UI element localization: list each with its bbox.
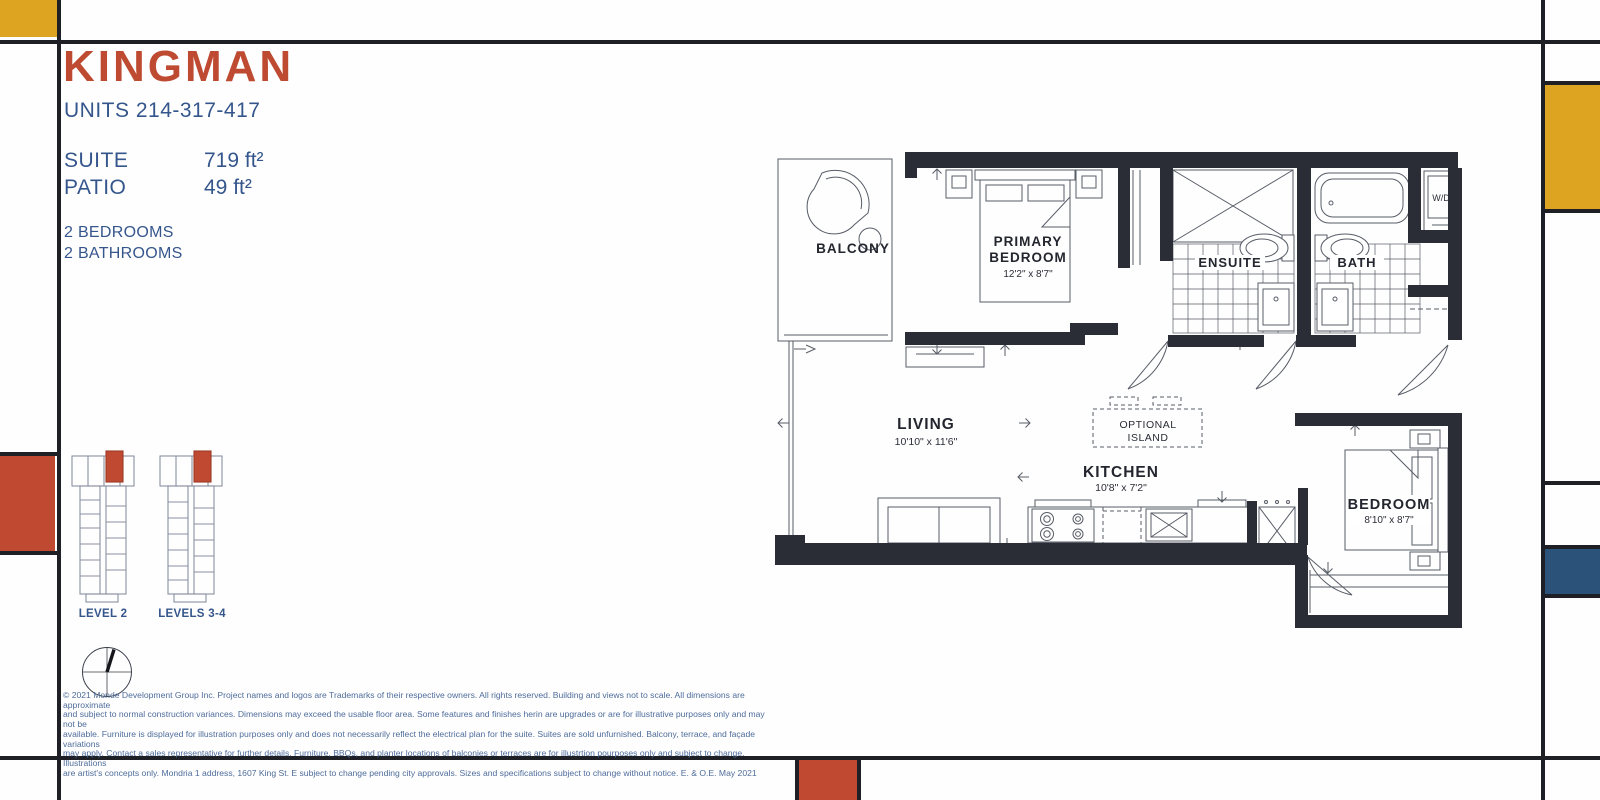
optional-island-label-2: ISLAND (1128, 432, 1169, 444)
label-halos (1195, 255, 1430, 525)
bathrooms-count: 2 BATHROOMS (64, 245, 183, 263)
right-mid-bar (1541, 481, 1600, 485)
unit-numbers: UNITS 214-317-417 (64, 99, 260, 123)
primary-bedroom-label-2: BEDROOM (989, 250, 1067, 265)
disclaimer-line: and subject to normal construction varia… (63, 710, 779, 729)
ensuite-door-swing (1128, 341, 1168, 389)
primary-bedroom-dims: 12'2" x 8'7" (1003, 269, 1053, 280)
ensuite-sink (1258, 283, 1294, 331)
blue-right-bottom-bar (1541, 594, 1600, 598)
patio-deck-lines (1310, 570, 1456, 613)
bath-door-swing (1256, 341, 1296, 389)
patio-label: PATIO (64, 176, 204, 200)
disclaimer-line: may apply. Contact a sales representativ… (63, 749, 779, 768)
kitchen-sink (1146, 509, 1192, 541)
disclaimer-line: available. Furniture is displayed for il… (63, 730, 779, 749)
bath-label: BATH (1337, 255, 1376, 270)
sofa (878, 498, 1000, 548)
patio-value: 49 ft² (204, 176, 252, 199)
kitchen-dims: 10'8" x 7'2" (1095, 482, 1147, 494)
kitchen-counter (1028, 500, 1248, 543)
bedrooms-count: 2 BEDROOMS (64, 224, 174, 242)
keyplan-levels34-building (160, 451, 222, 602)
red-bottom-right-bar (857, 760, 861, 800)
primary-nightstand-right (1076, 170, 1102, 198)
dishwasher (1103, 507, 1141, 543)
primary-bedroom-label-1: PRIMARY (994, 234, 1063, 249)
disclaimer-line: are artist's concepts only. Mondria 1 ad… (63, 769, 779, 779)
mondrian-red-bottom (799, 760, 857, 800)
mondrian-yellow-topleft (0, 0, 57, 37)
optional-island-label-1: OPTIONAL (1119, 419, 1176, 431)
bath-sink (1317, 283, 1353, 331)
disclaimer-text: © 2021 Monde Development Group Inc. Proj… (63, 691, 779, 778)
disclaimer-line: © 2021 Monde Development Group Inc. Proj… (63, 691, 779, 710)
red-left-bottom-bar (0, 551, 57, 555)
yellow-right-bottom-bar (1541, 209, 1600, 213)
stove (1032, 509, 1094, 542)
level2-label: LEVEL 2 (70, 608, 136, 620)
unit-floorplan: BALCONY PRIMARY BEDROOM 12'2" x 8'7" ENS… (770, 145, 1470, 635)
suite-value: 719 ft² (204, 149, 264, 172)
primary-nightstand-left (946, 170, 972, 198)
keyplan-buildings (70, 448, 230, 608)
levels34-label: LEVELS 3-4 (152, 608, 232, 620)
living-label: LIVING (897, 416, 955, 433)
mondrian-yellow-right (1545, 85, 1600, 209)
living-dims: 10'10" x 11'6" (895, 436, 958, 448)
highlight-unit-levels34 (194, 451, 211, 482)
patio-spec-row: PATIO49 ft² (64, 176, 324, 200)
bedroom-nightstand-top (1410, 430, 1440, 448)
suite-spec-row: SUITE719 ft² (64, 149, 324, 173)
keyplan-level2-building (72, 451, 134, 602)
highlight-unit-level2 (106, 451, 123, 482)
mondrian-red-left (0, 456, 55, 551)
bedroom-nightstand-bottom (1410, 552, 1440, 570)
balcony-lounge-chair (807, 170, 869, 234)
frame-vline-left (57, 0, 61, 800)
bedroom-label: BEDROOM (1348, 497, 1431, 513)
balcony-label: BALCONY (816, 241, 890, 256)
kitchen-label: KITCHEN (1083, 464, 1159, 481)
mondrian-blue-right (1545, 549, 1600, 594)
balcony-door-arrow (794, 345, 815, 353)
washer-dryer-label: W/D (1432, 193, 1450, 203)
tv-console (906, 347, 984, 367)
page-title: KINGMAN (63, 42, 294, 92)
ensuite-label: ENSUITE (1198, 255, 1261, 270)
floorplan-sheet: KINGMAN UNITS 214-317-417 SUITE719 ft² P… (0, 0, 1600, 800)
bedroom-dims: 8'10" x 8'7" (1364, 515, 1414, 526)
suite-label: SUITE (64, 149, 204, 173)
ensuite-shower (1173, 170, 1293, 242)
entry-door-swing (1398, 345, 1448, 395)
bathtub (1315, 173, 1409, 223)
bedroom-door-swing (1308, 557, 1352, 595)
